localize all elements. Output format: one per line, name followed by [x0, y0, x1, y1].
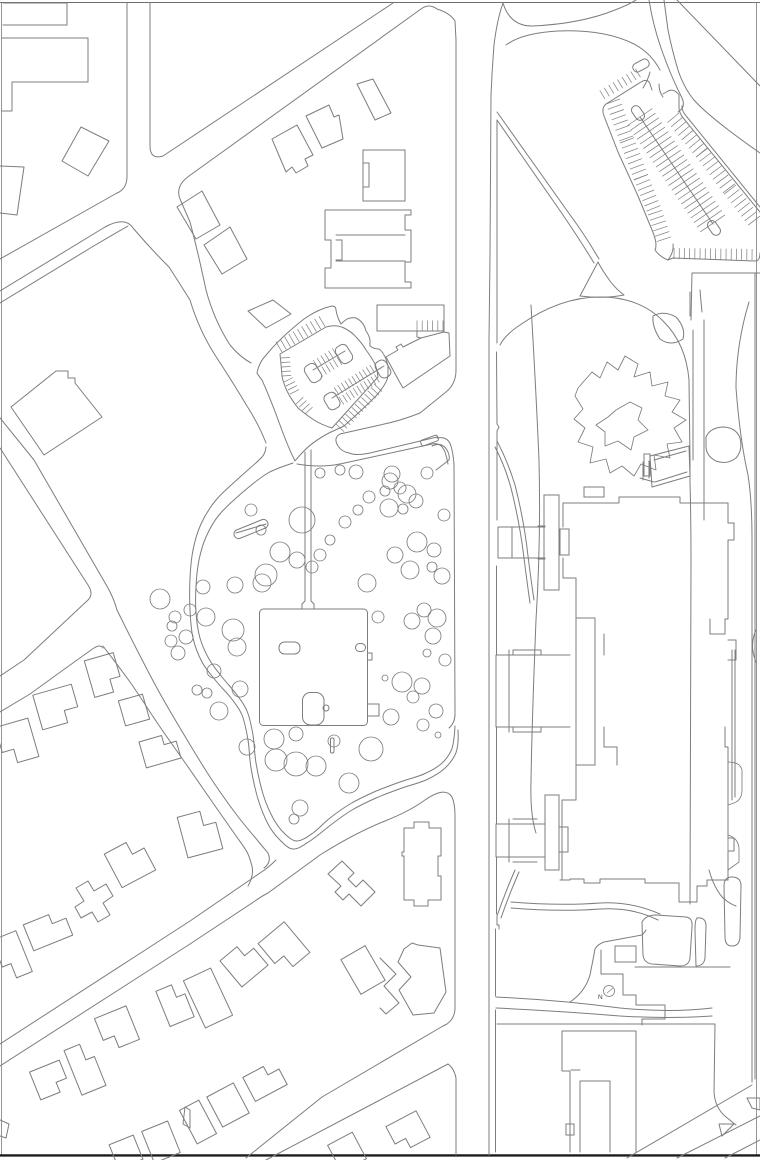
svg-text:N: N — [598, 994, 603, 1001]
